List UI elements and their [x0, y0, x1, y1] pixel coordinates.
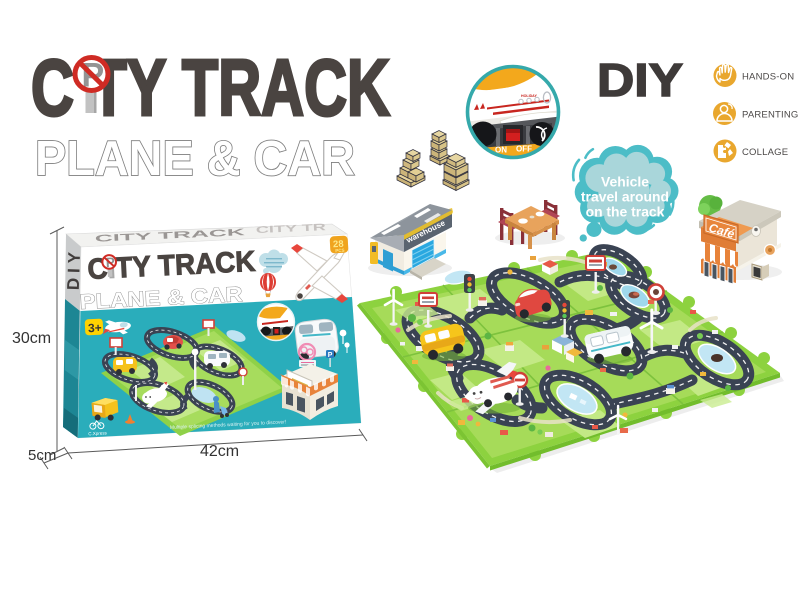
svg-text:DIY: DIY	[597, 54, 683, 106]
svg-text:HANDS-ON: HANDS-ON	[742, 72, 794, 83]
svg-text:C.Xpress: C.Xpress	[88, 430, 107, 436]
svg-text:P: P	[328, 352, 333, 359]
svg-text:Vehicle: Vehicle	[601, 174, 649, 190]
svg-text:42cm: 42cm	[200, 443, 239, 460]
svg-text:PCS: PCS	[335, 248, 345, 253]
svg-text:HOLIDAY: HOLIDAY	[521, 94, 537, 98]
svg-text:travel around: travel around	[581, 189, 669, 205]
svg-text:5cm: 5cm	[28, 447, 56, 464]
svg-text:PLANE & CAR: PLANE & CAR	[35, 132, 355, 186]
svg-text:PARENTING: PARENTING	[742, 110, 799, 121]
svg-text:on the track: on the track	[586, 204, 665, 220]
svg-text:OFF: OFF	[516, 145, 532, 154]
svg-text:3+: 3+	[88, 321, 102, 336]
svg-text:COLLAGE: COLLAGE	[742, 147, 788, 158]
svg-text:30cm: 30cm	[12, 330, 51, 347]
